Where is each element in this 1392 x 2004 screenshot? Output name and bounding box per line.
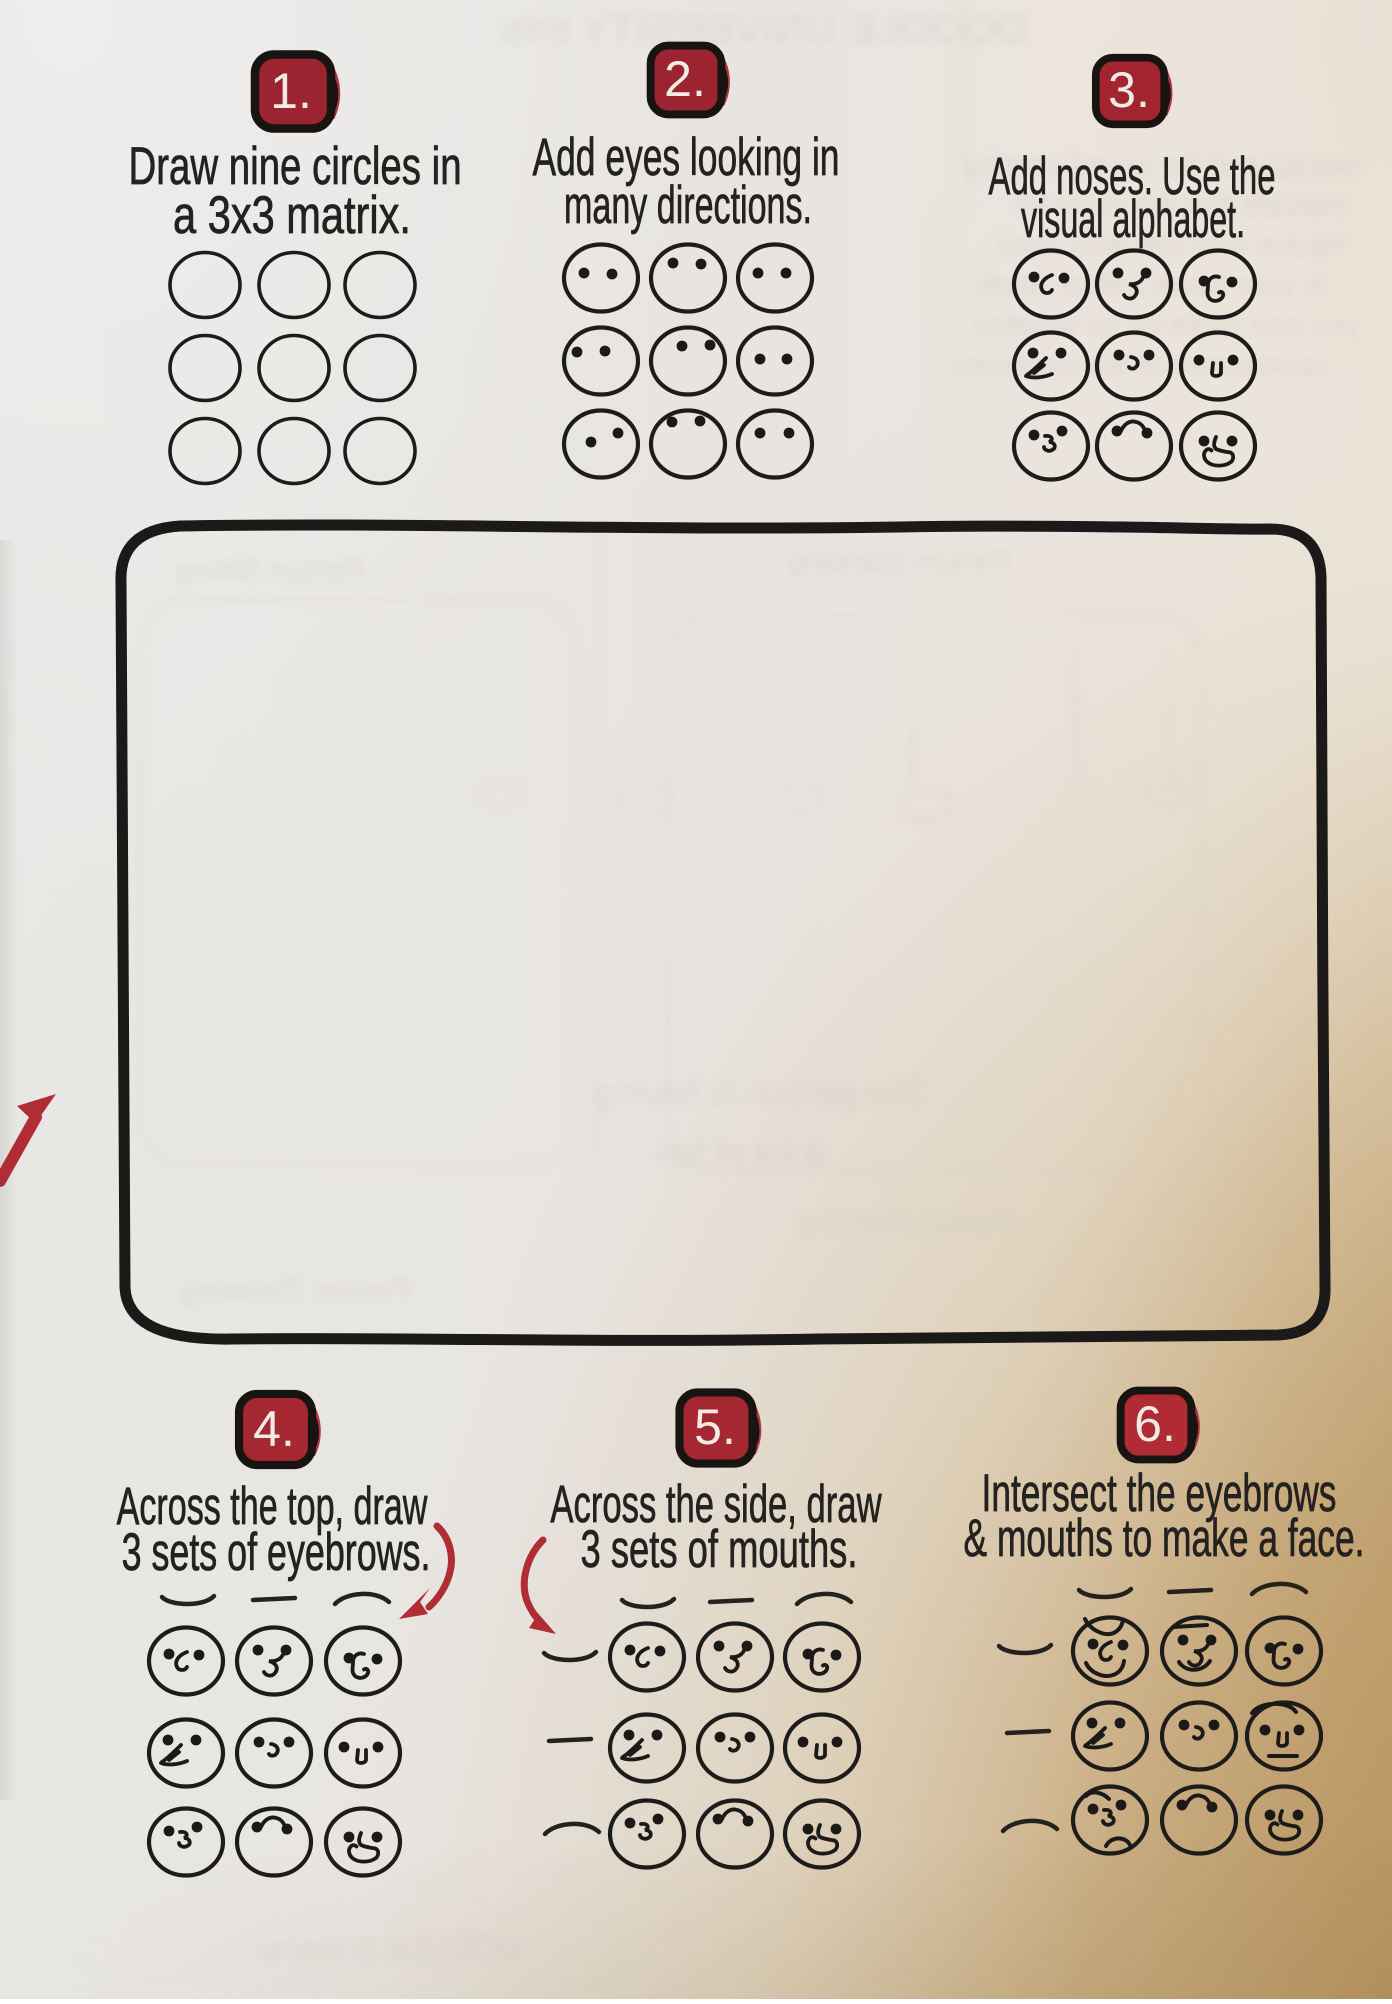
svg-text:a 3x3 matrix.: a 3x3 matrix. xyxy=(173,186,411,245)
svg-text:3 sets of eyebrows.: 3 sets of eyebrows. xyxy=(122,1522,431,1582)
svg-text:DOODLE UNIVERSITY this: DOODLE UNIVERSITY this xyxy=(503,7,1026,51)
svg-text:4.: 4. xyxy=(253,1401,295,1457)
svg-text:1.: 1. xyxy=(270,63,312,119)
svg-text:Person Sitting: Person Sitting xyxy=(177,554,364,587)
svg-text:a lot of fun: a lot of fun xyxy=(656,1132,824,1173)
svg-text:3 sets of mouths.: 3 sets of mouths. xyxy=(581,1519,858,1578)
svg-text:many directions.: many directions. xyxy=(564,177,812,235)
svg-text:Person Standing: Person Standing xyxy=(789,546,1011,579)
svg-text:The person is having: The person is having xyxy=(593,1072,927,1113)
svg-text:appearance of the discovery: appearance of the discovery xyxy=(952,349,1329,382)
svg-text:3.: 3. xyxy=(1108,62,1150,118)
svg-text:visual alphabet.: visual alphabet. xyxy=(1021,191,1245,249)
svg-text:5.: 5. xyxy=(694,1399,736,1455)
svg-text:Person Throwing: Person Throwing xyxy=(182,1274,408,1307)
svg-text:Person Running: Person Running xyxy=(797,1206,1012,1239)
svg-text:6.: 6. xyxy=(1134,1396,1176,1452)
svg-text:2.: 2. xyxy=(664,51,706,107)
svg-text:MODULE 3 stamp: MODULE 3 stamp xyxy=(256,1930,524,1967)
svg-text:& mouths to make a face.: & mouths to make a face. xyxy=(964,1509,1365,1568)
